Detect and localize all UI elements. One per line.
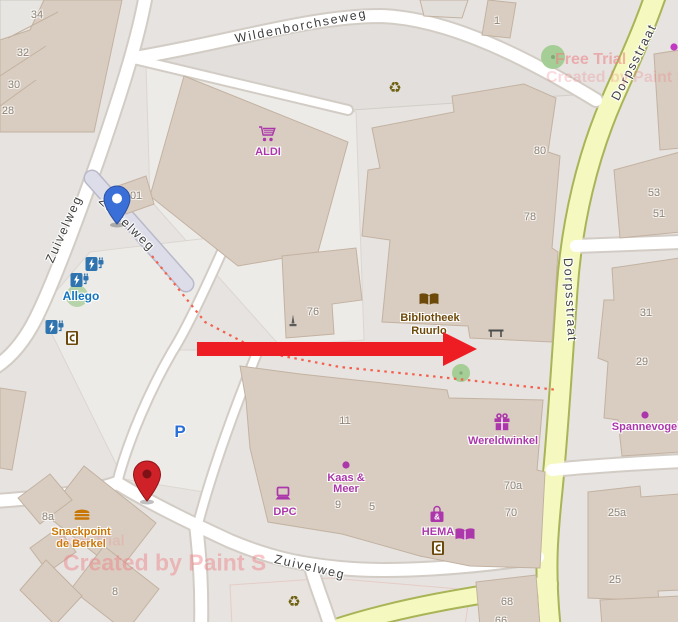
monument-icon <box>289 315 298 328</box>
department-store-bag-icon: & <box>429 505 445 523</box>
recycling-icon: ♻ <box>287 595 300 610</box>
computer-shop-icon <box>274 487 293 502</box>
svg-text:&: & <box>434 512 440 521</box>
charging-station-icon <box>70 272 90 288</box>
poi-dot <box>641 411 650 420</box>
blue-pin-icon <box>102 185 132 229</box>
map-canvas[interactable]: &♻♻ WildenborchsewegZuivelwegZuivelwegZu… <box>0 0 678 622</box>
base-map <box>0 0 678 622</box>
red-pin-icon <box>131 460 163 506</box>
charging-station-icon <box>45 319 65 335</box>
red-pin-marker[interactable] <box>131 460 163 506</box>
atm-icon <box>66 331 79 346</box>
gift-shop-icon <box>494 413 511 431</box>
poi-dot <box>342 461 351 470</box>
library-book-icon <box>419 293 440 308</box>
recycling-icon: ♻ <box>388 81 401 96</box>
bench-icon <box>488 328 505 338</box>
blue-pin-marker[interactable] <box>102 185 132 229</box>
poi-dot-edge <box>670 43 678 52</box>
atm-icon <box>432 541 445 556</box>
charging-station-icon <box>85 256 105 272</box>
shopping-cart-icon <box>258 126 278 143</box>
bookshop-icon <box>455 528 476 543</box>
fast-food-burger-icon <box>73 507 92 521</box>
